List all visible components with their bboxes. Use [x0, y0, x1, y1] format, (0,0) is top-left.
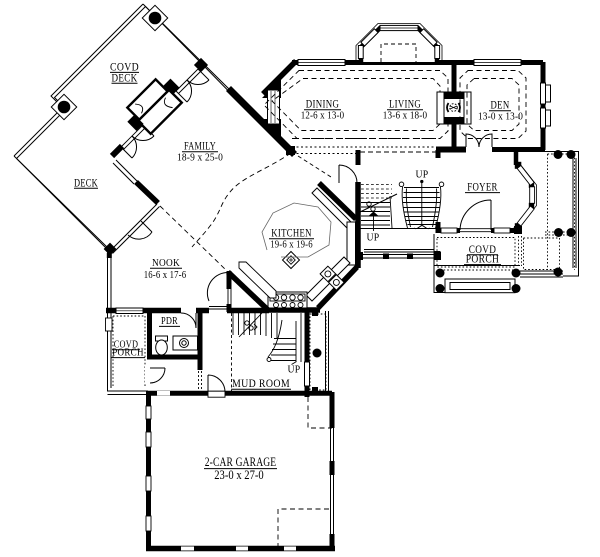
svg-text:PDR: PDR [161, 316, 178, 327]
svg-text:18-9 x 25-0: 18-9 x 25-0 [177, 152, 223, 164]
svg-text:MUD ROOM: MUD ROOM [232, 378, 290, 390]
svg-text:UP: UP [416, 170, 429, 181]
svg-text:UP: UP [288, 365, 301, 376]
svg-text:DECK: DECK [74, 177, 98, 189]
svg-text:13-6 x 18-0: 13-6 x 18-0 [383, 109, 428, 121]
svg-text:23-0 x 27-0: 23-0 x 27-0 [214, 468, 264, 482]
svg-text:2-CAR GARAGE: 2-CAR GARAGE [205, 455, 277, 469]
svg-text:NOOK: NOOK [152, 258, 180, 269]
svg-text:13-0 x 13-0: 13-0 x 13-0 [478, 110, 523, 122]
svg-text:PORCH: PORCH [112, 347, 144, 358]
svg-text:PORCH: PORCH [466, 253, 500, 265]
svg-text:16-6 x 17-6: 16-6 x 17-6 [144, 269, 187, 281]
svg-text:DECK: DECK [112, 72, 138, 84]
svg-text:FOYER: FOYER [467, 181, 498, 193]
svg-text:19-6 x 19-6: 19-6 x 19-6 [270, 238, 313, 250]
svg-text:12-6 x 13-0: 12-6 x 13-0 [301, 109, 345, 121]
svg-text:UP: UP [367, 233, 380, 244]
